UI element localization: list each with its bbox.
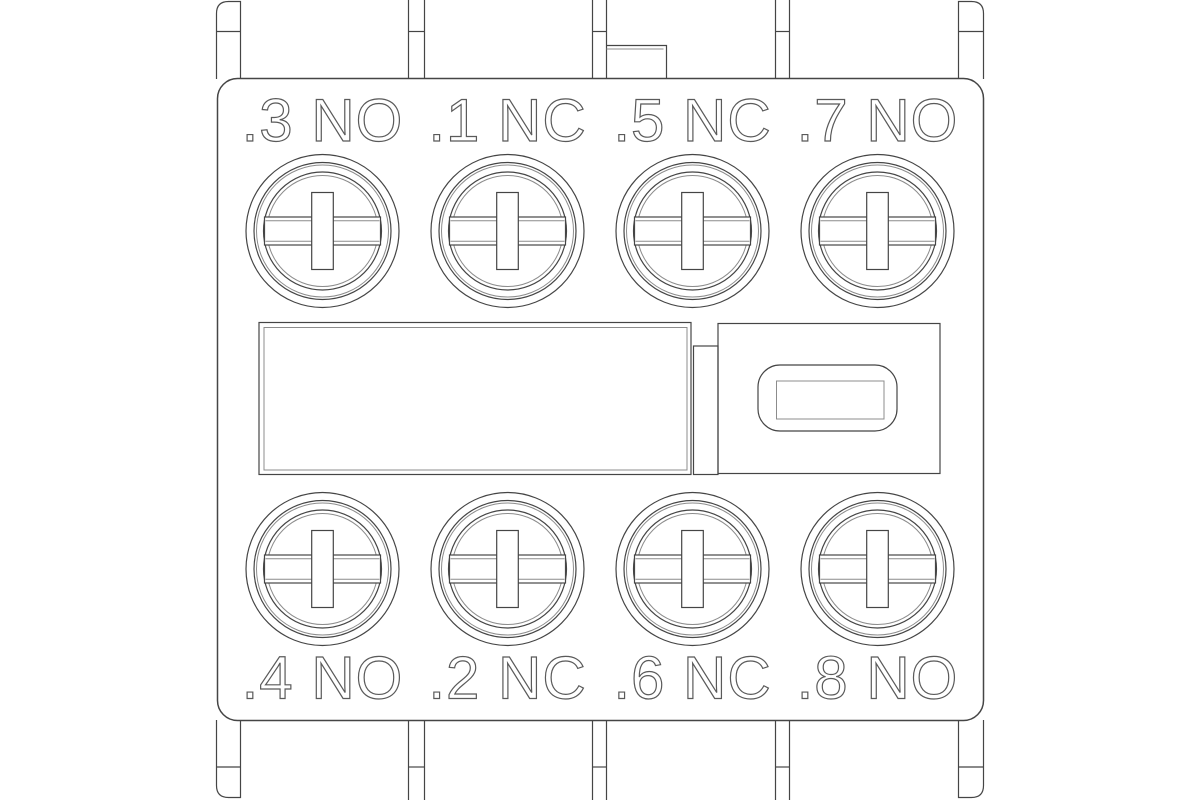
housing-step <box>607 46 667 80</box>
mounting-tab <box>409 720 425 800</box>
mounting-tab <box>217 720 241 798</box>
mounting-tabs-top <box>217 0 984 79</box>
terminal-label: .4 NO <box>242 645 404 712</box>
mounting-tab <box>593 0 607 79</box>
mounting-tab <box>593 720 607 800</box>
mounting-tab <box>959 2 984 80</box>
mounting-tab <box>217 2 241 80</box>
terminal-label: .8 NO <box>797 645 959 712</box>
mounting-tab <box>776 720 790 800</box>
terminal-label: .1 NC <box>428 87 586 154</box>
mounting-tab <box>776 0 790 79</box>
technical-drawing-canvas: .3 NO .1 NC .5 NC .7 NO .4 NO .2 NC .6 N… <box>0 0 1200 800</box>
terminal-label: .7 NO <box>797 87 959 154</box>
mounting-tabs-bottom <box>217 720 984 800</box>
terminal-label: .2 NC <box>428 645 586 712</box>
mounting-tab <box>959 720 984 798</box>
terminal-label: .5 NC <box>613 87 771 154</box>
terminal-label: .6 NC <box>613 645 771 712</box>
terminal-label: .3 NO <box>242 87 404 154</box>
contact-block-drawing: .3 NO .1 NC .5 NC .7 NO .4 NO .2 NC .6 N… <box>0 0 1200 800</box>
mounting-tab <box>409 0 425 79</box>
